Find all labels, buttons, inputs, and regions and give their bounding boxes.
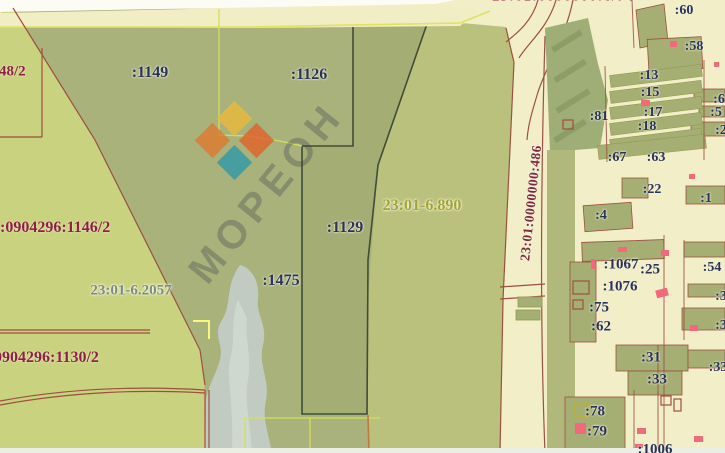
map-canvas [0,0,725,453]
cadastral-map[interactable]: МОРЕОН :1149 :1126 :1129 :1475 :60 :58 :… [0,0,725,453]
orange-boundary [368,415,369,453]
bottom-strip [0,448,725,453]
